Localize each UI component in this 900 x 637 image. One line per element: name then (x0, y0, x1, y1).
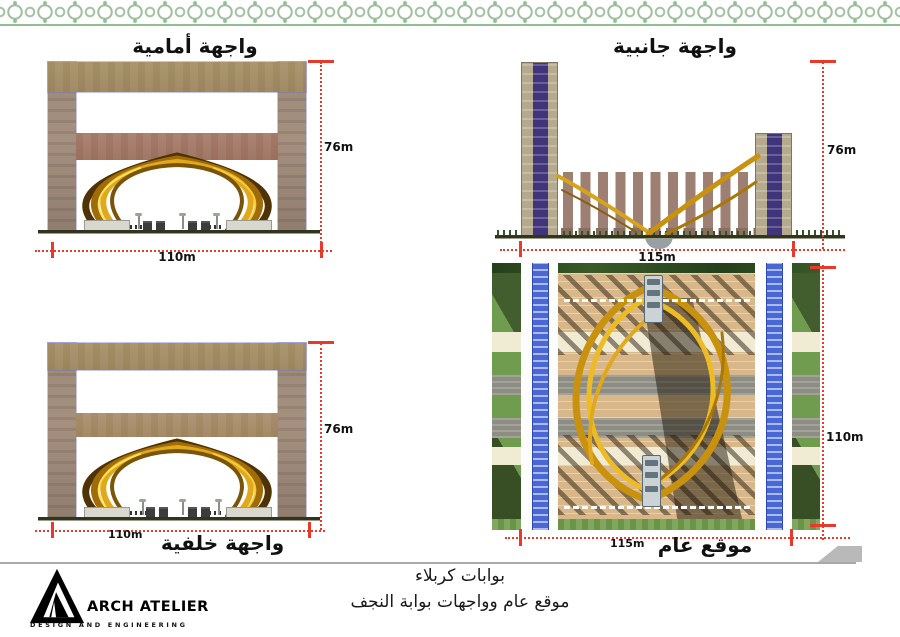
back-elevation-drawing (48, 343, 306, 519)
front-ground-line (38, 230, 320, 234)
back-lamp-1 (142, 501, 144, 515)
side-height-dimension-line (822, 62, 824, 249)
side-elevation-title: واجهة جانبية (555, 34, 795, 58)
back-gold-arch-graphic (48, 348, 306, 519)
back-ground-line (38, 517, 320, 521)
site-height-dimension-line (822, 265, 824, 540)
back-lamp-3 (218, 501, 220, 515)
site-width-right-tick (790, 529, 793, 546)
back-elevation-title: واجهة خلفية (150, 531, 295, 555)
logo-name: ARCH ATELIER (87, 599, 209, 615)
front-elevation-title: واجهة أمامية (60, 34, 330, 58)
site-plan-drawing (492, 263, 820, 530)
back-width-right-tick (308, 522, 311, 538)
side-width-left-tick (519, 241, 522, 257)
back-width-left-tick (51, 522, 54, 538)
side-width-right-tick (792, 241, 795, 257)
front-width-dimension-label: 110m (127, 250, 227, 264)
front-height-top-tick (308, 60, 334, 63)
back-height-top-tick (308, 341, 334, 344)
back-truck-2 (159, 507, 168, 517)
logo-tagline: DESIGN AND ENGINEERING (30, 621, 188, 629)
side-ground-line (495, 235, 845, 239)
site-truck-bottom (642, 455, 661, 507)
back-truck-4 (201, 507, 210, 517)
ornament-border (0, 0, 900, 26)
back-truck-3 (188, 507, 197, 517)
site-width-dimension-label: 115m (610, 537, 644, 550)
back-height-dimension-label: 76m (324, 422, 353, 436)
site-plan-title: موقع عام (645, 533, 765, 557)
side-left-greenery (497, 230, 521, 235)
footer-separator-line (0, 562, 856, 564)
project-title: بوابات كربلاء (290, 566, 630, 586)
site-height-top-tick (810, 266, 836, 269)
side-height-dimension-label: 76m (827, 143, 856, 157)
site-height-dimension-label: 110m (826, 430, 864, 444)
front-lamp-1 (138, 215, 140, 229)
front-gold-arch-graphic (48, 62, 306, 233)
front-elevation-drawing (48, 62, 306, 233)
back-height-dimension-line (320, 343, 322, 530)
front-lamp-3 (216, 215, 218, 229)
front-height-dimension-line (320, 62, 322, 250)
presentation-sheet: واجهة أمامية 76m 110m واجهة جانبية (0, 0, 900, 637)
back-width-dimension-label: 110m (108, 528, 142, 541)
front-width-right-tick (320, 242, 323, 258)
front-height-dimension-label: 76m (324, 140, 353, 154)
sheet-subtitle: موقع عام وواجهات بوابة النجف (290, 592, 630, 612)
footer-corner-chevron (818, 546, 862, 562)
side-height-top-tick (810, 60, 836, 63)
front-lamp-2 (182, 215, 184, 229)
site-height-bottom-tick (810, 524, 836, 527)
side-width-dimension-label: 115m (607, 250, 707, 264)
site-width-left-tick (519, 529, 522, 546)
back-truck-1 (146, 507, 155, 517)
front-width-left-tick (51, 242, 54, 258)
side-right-greenery (796, 230, 840, 235)
side-gold-ribbons-graphic (556, 150, 796, 240)
arch-atelier-logo-icon (28, 567, 86, 625)
back-lamp-2 (182, 501, 184, 515)
site-truck-top (644, 275, 663, 323)
side-left-tower (521, 62, 558, 238)
